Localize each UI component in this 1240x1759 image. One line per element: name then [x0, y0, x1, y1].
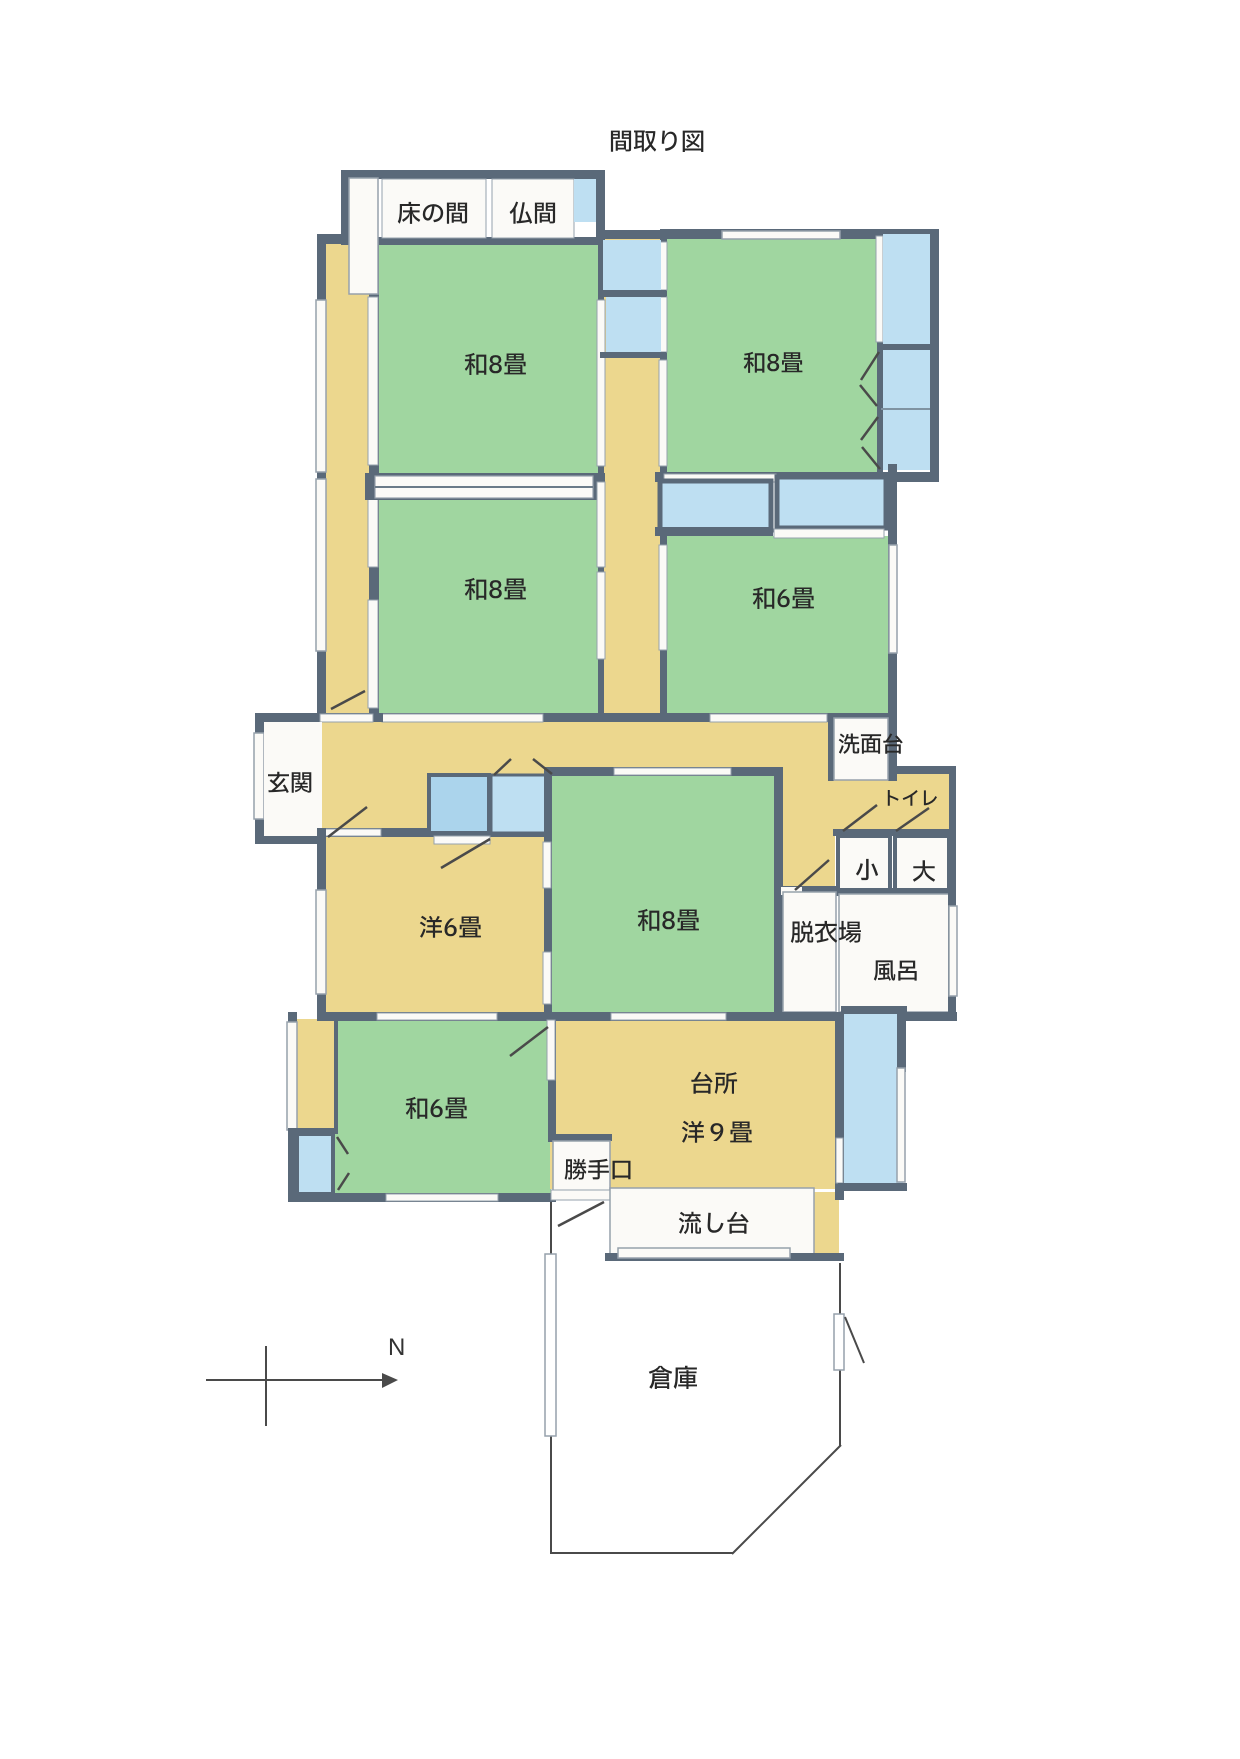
svg-text:N: N — [388, 1334, 405, 1361]
